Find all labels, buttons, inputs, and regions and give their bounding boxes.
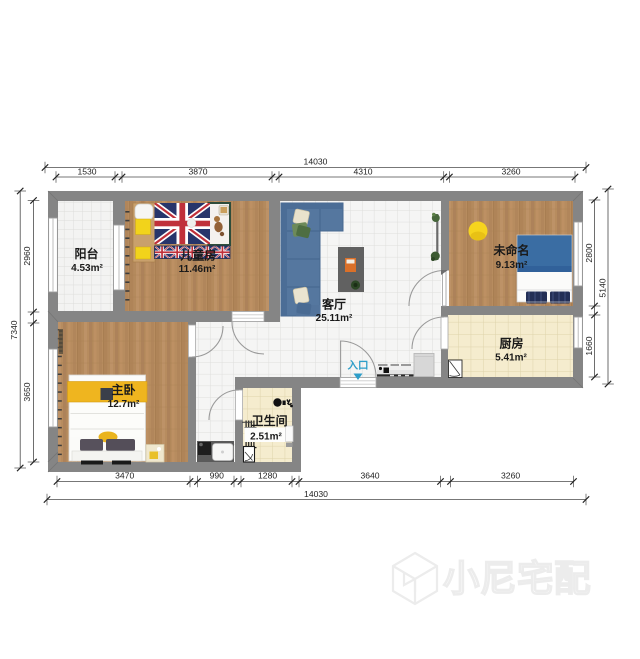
svg-text:990: 990 <box>210 471 225 481</box>
svg-text:小尼宅配: 小尼宅配 <box>443 558 591 599</box>
svg-text:3640: 3640 <box>360 471 379 481</box>
svg-text:1530: 1530 <box>77 167 96 177</box>
svg-text:14030: 14030 <box>304 489 328 499</box>
svg-text:4310: 4310 <box>353 167 372 177</box>
svg-text:未命名: 未命名 <box>492 243 529 258</box>
svg-text:3260: 3260 <box>501 471 520 481</box>
svg-text:4.53m²: 4.53m² <box>71 263 103 274</box>
svg-text:25.11m²: 25.11m² <box>316 313 353 324</box>
svg-text:3470: 3470 <box>115 471 134 481</box>
svg-text:14030: 14030 <box>304 157 328 167</box>
svg-text:儿童房: 儿童房 <box>179 248 216 263</box>
svg-text:2.51m²: 2.51m² <box>250 431 282 442</box>
svg-text:5140: 5140 <box>598 278 608 297</box>
svg-text:3870: 3870 <box>188 167 207 177</box>
svg-text:1660: 1660 <box>584 336 594 355</box>
svg-text:12.7m²: 12.7m² <box>108 399 140 410</box>
svg-text:厨房: 厨房 <box>499 336 523 351</box>
svg-text:2800: 2800 <box>584 243 594 262</box>
svg-text:3260: 3260 <box>501 167 520 177</box>
svg-text:11.46m²: 11.46m² <box>179 264 216 275</box>
svg-text:阳台: 阳台 <box>74 246 98 261</box>
svg-text:3650: 3650 <box>22 382 32 401</box>
svg-text:9.13m²: 9.13m² <box>496 260 528 271</box>
svg-text:7340: 7340 <box>9 320 19 339</box>
svg-text:入口: 入口 <box>348 360 369 372</box>
svg-text:5.41m²: 5.41m² <box>495 352 527 363</box>
svg-text:2960: 2960 <box>22 246 32 265</box>
svg-text:卫生间: 卫生间 <box>252 413 288 428</box>
svg-text:客厅: 客厅 <box>321 297 346 312</box>
svg-text:主卧: 主卧 <box>111 382 135 397</box>
svg-text:1280: 1280 <box>258 471 277 481</box>
